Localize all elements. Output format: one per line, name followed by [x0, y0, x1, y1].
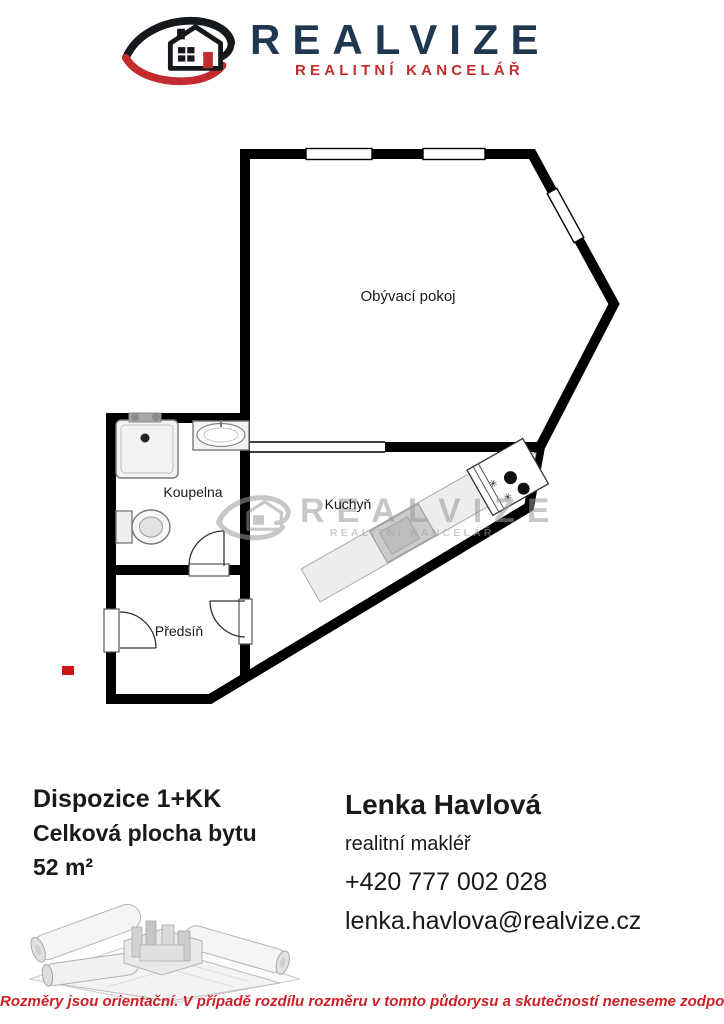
bathroom-sink: [193, 421, 249, 450]
bathroom-toilet: [116, 510, 170, 544]
apartment-outline: [111, 154, 614, 699]
room-label-hallway: Předsíň: [155, 623, 203, 639]
bathroom-shower: [116, 413, 178, 478]
apartment-details: Dispozice 1+KK Celková plocha bytu 52 m²: [33, 782, 257, 884]
watermark-tagline: REALITNÍ KANCELÁŘ: [330, 526, 495, 539]
area-label: Celková plocha bytu: [33, 816, 257, 850]
agent-contact-card: Lenka Havlová realitní makléř +420 777 0…: [345, 785, 641, 941]
blueprint-illustration: [12, 883, 304, 1011]
disposition-title: Dispozice 1+KK: [33, 782, 257, 816]
room-label-kitchen: Kuchyň: [325, 496, 372, 512]
room-label-bathroom: Koupelna: [163, 484, 222, 500]
room-label-living-room: Obývací pokoj: [360, 288, 455, 305]
agent-role: realitní makléř: [345, 825, 641, 863]
agent-phone: +420 777 002 028: [345, 863, 641, 902]
red-dash-mark: [62, 666, 74, 675]
footer-disclaimer: Rozměry jsou orientační. V případě rozdí…: [0, 993, 724, 1010]
agent-email: lenka.havlova@realvize.cz: [345, 902, 641, 941]
agent-name: Lenka Havlová: [345, 785, 641, 825]
area-value: 52 m²: [33, 850, 257, 884]
